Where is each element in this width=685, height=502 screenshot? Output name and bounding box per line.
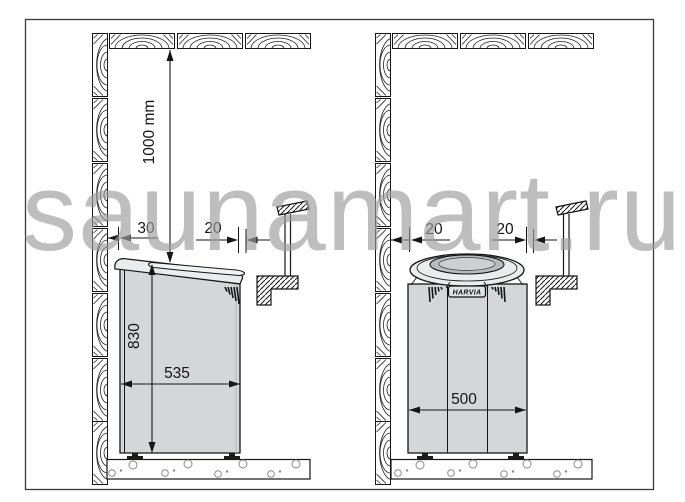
left-wood-wall bbox=[93, 34, 108, 485]
guard-gap-dimension-right: 20 bbox=[492, 221, 557, 253]
heater-foot bbox=[224, 453, 240, 460]
wall-gap-dimension-left: 30 bbox=[108, 220, 158, 250]
left-heater-side-view bbox=[115, 259, 245, 460]
heater-foot bbox=[508, 453, 524, 460]
right-diagram: HARVIA bbox=[376, 34, 594, 485]
brand-logo-text: HARVIA bbox=[453, 290, 482, 297]
heater-width-label: 535 bbox=[164, 365, 190, 382]
guard-gap-label: 20 bbox=[204, 220, 222, 237]
guard-gap-label: 20 bbox=[496, 221, 514, 238]
left-wood-ceiling bbox=[110, 34, 311, 49]
heater-foot bbox=[417, 453, 433, 460]
heater-height-label: 830 bbox=[126, 323, 143, 349]
left-concrete-floor bbox=[107, 460, 310, 480]
right-heater-front-view: HARVIA bbox=[408, 254, 527, 460]
wall-gap-label: 20 bbox=[425, 221, 443, 238]
wall-gap-label: 30 bbox=[137, 220, 155, 237]
installation-diagram: 1000 mm 830 535 30 bbox=[0, 0, 685, 502]
right-wood-ceiling bbox=[393, 34, 594, 49]
right-guard-rail-section bbox=[536, 201, 588, 305]
brand-logo-badge: HARVIA bbox=[449, 286, 486, 297]
right-wood-wall bbox=[376, 34, 391, 485]
diagram-canvas: 1000 mm 830 535 30 bbox=[0, 0, 685, 502]
left-diagram: 1000 mm 830 535 30 bbox=[93, 34, 311, 485]
right-concrete-floor bbox=[391, 460, 592, 480]
heater-foot bbox=[127, 453, 143, 460]
heater-width-label: 500 bbox=[451, 391, 477, 408]
wall-gap-dimension-right: 20 bbox=[391, 221, 450, 252]
guard-gap-dimension-left: 20 bbox=[196, 220, 270, 253]
left-guard-rail-section bbox=[257, 201, 309, 305]
ceiling-clearance-label: 1000 mm bbox=[141, 100, 158, 165]
